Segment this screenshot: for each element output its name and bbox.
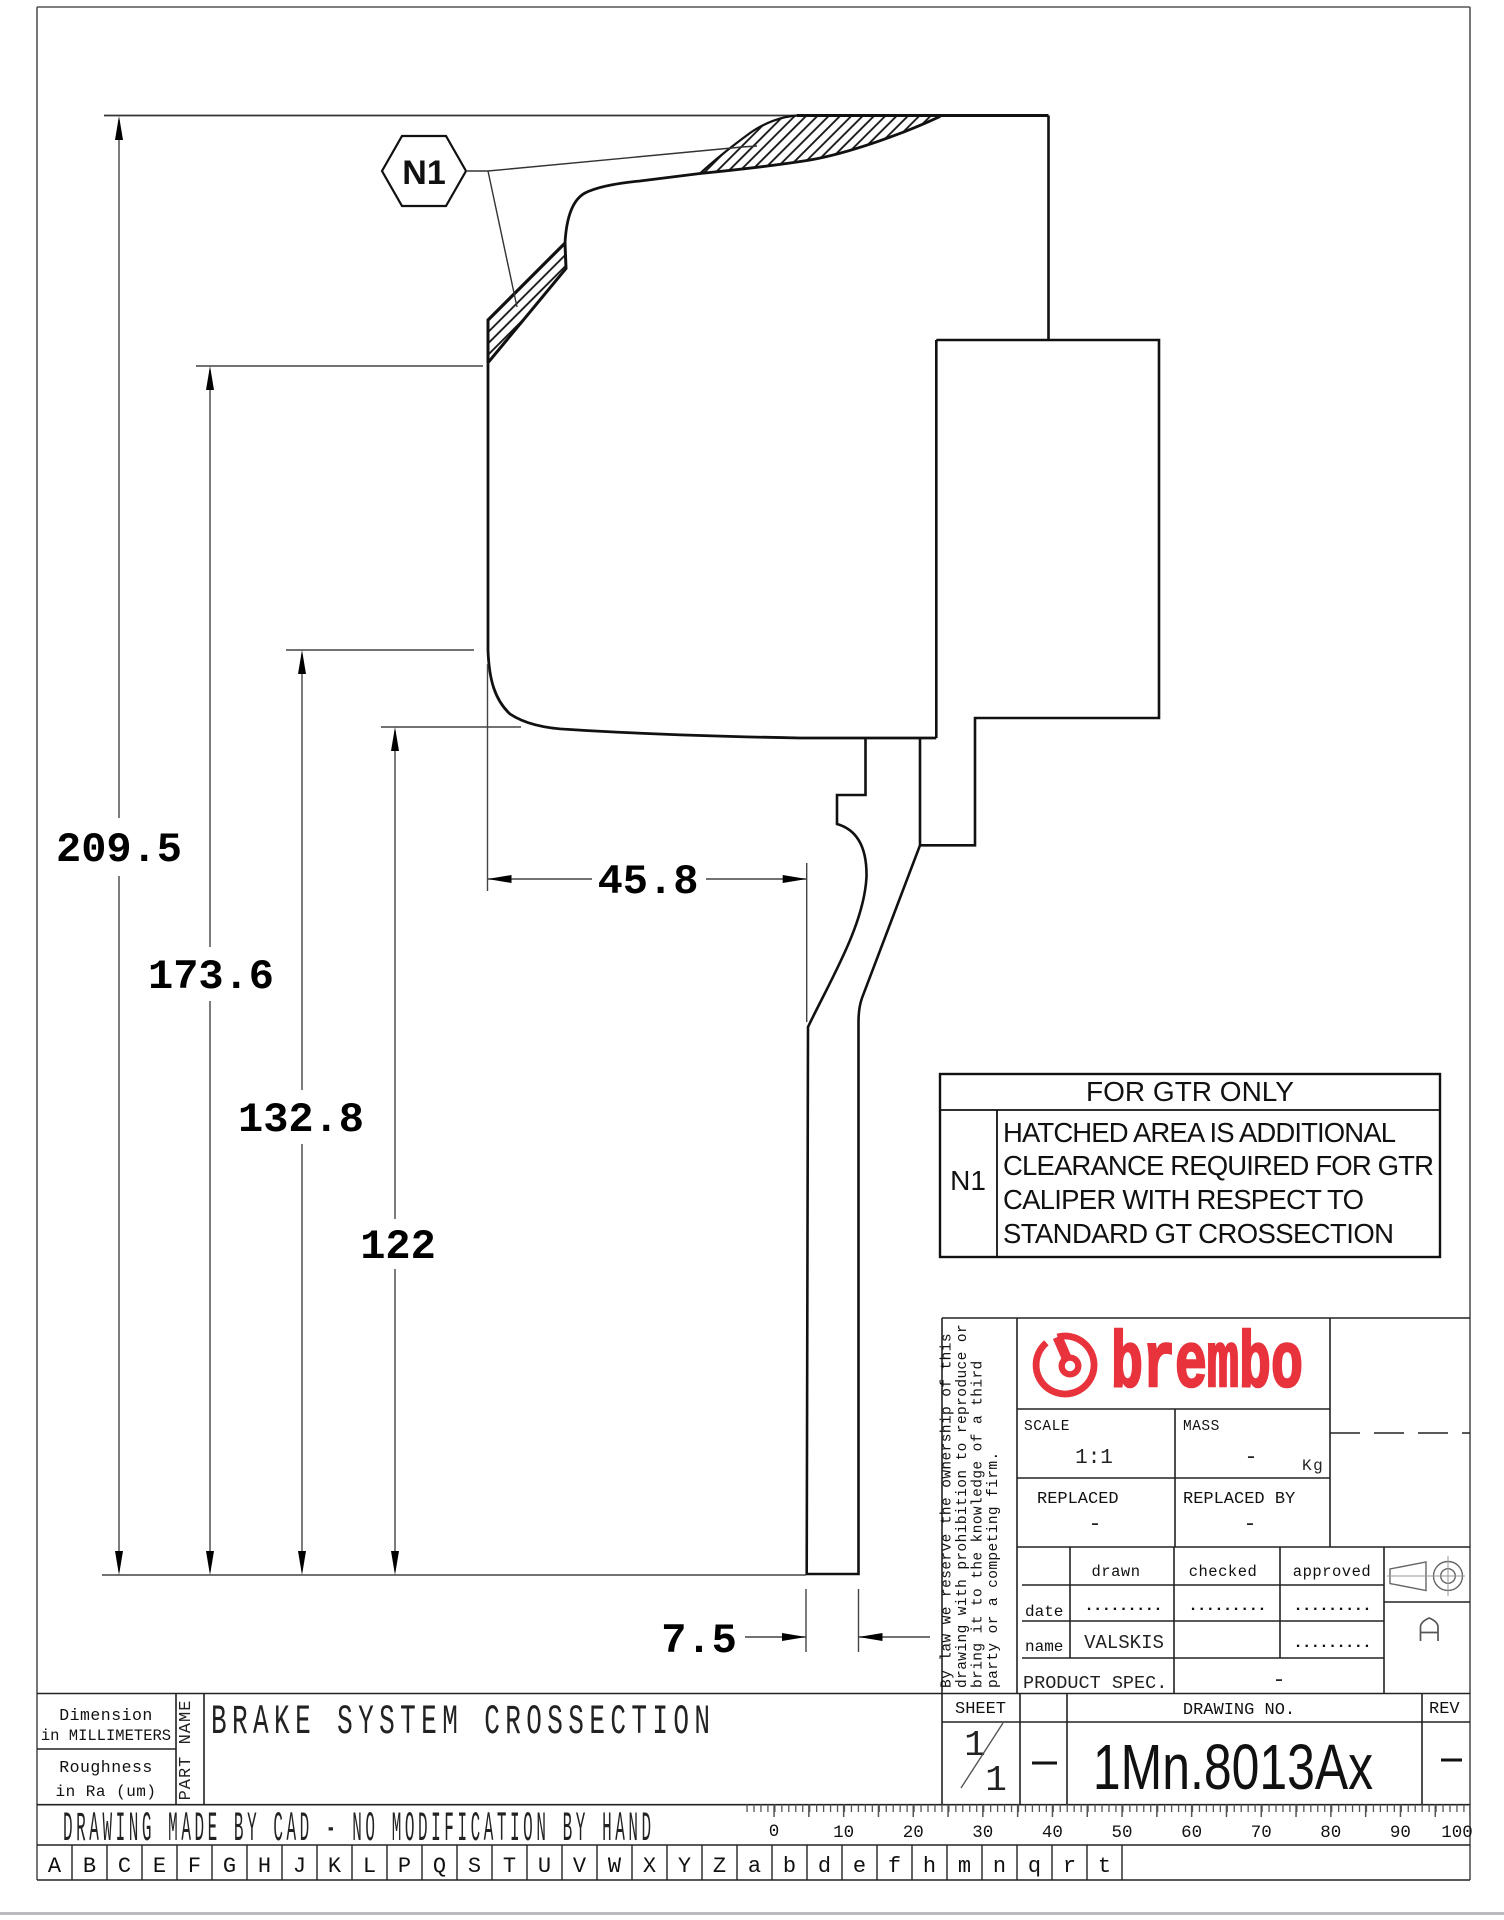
svg-text:80: 80 [1320, 1823, 1341, 1843]
svg-text:209.5: 209.5 [56, 826, 182, 874]
svg-text:J: J [293, 1854, 306, 1879]
svg-text:-: - [1088, 1512, 1101, 1537]
svg-text:.........: ......... [1293, 1634, 1370, 1652]
svg-text:in MILLIMETERS: in MILLIMETERS [41, 1727, 171, 1745]
svg-text:173.6: 173.6 [148, 953, 274, 1001]
svg-text:SHEET: SHEET [955, 1700, 1006, 1719]
svg-text:60: 60 [1181, 1823, 1202, 1843]
svg-text:STANDARD GT CROSSECTION: STANDARD GT CROSSECTION [1003, 1218, 1394, 1249]
svg-text:By law we reserve the ownershi: By law we reserve the ownership of this [940, 1333, 956, 1688]
svg-text:.........: ......... [1188, 1597, 1265, 1615]
svg-text:REPLACED BY: REPLACED BY [1183, 1490, 1295, 1509]
svg-text:t: t [1098, 1854, 1111, 1879]
svg-text:m: m [958, 1854, 971, 1879]
svg-text:1: 1 [985, 1760, 1007, 1801]
svg-text:CLEARANCE REQUIRED FOR GTR: CLEARANCE REQUIRED FOR GTR [1003, 1150, 1434, 1181]
svg-text:L: L [363, 1854, 376, 1879]
svg-text:Y: Y [678, 1854, 691, 1879]
svg-text:100: 100 [1441, 1823, 1473, 1843]
svg-text:W: W [608, 1854, 622, 1879]
svg-text:B: B [83, 1854, 96, 1879]
svg-text:.........: ......... [1084, 1597, 1161, 1615]
svg-text:10: 10 [833, 1823, 854, 1843]
svg-text:REPLACED: REPLACED [1037, 1490, 1119, 1509]
svg-text:BRAKE SYSTEM CROSSECTION: BRAKE SYSTEM CROSSECTION [211, 1699, 715, 1746]
svg-text:r: r [1063, 1854, 1076, 1879]
svg-text:in Ra (um): in Ra (um) [55, 1783, 156, 1801]
svg-text:C: C [118, 1854, 131, 1879]
svg-text:h: h [923, 1854, 936, 1879]
svg-text:50: 50 [1111, 1823, 1132, 1843]
svg-text:132.8: 132.8 [238, 1096, 364, 1144]
svg-text:HATCHED AREA IS ADDITIONAL: HATCHED AREA IS ADDITIONAL [1003, 1117, 1396, 1148]
svg-text:30: 30 [972, 1823, 993, 1843]
svg-text:SCALE: SCALE [1024, 1419, 1070, 1435]
svg-text:FOR GTR ONLY: FOR GTR ONLY [1086, 1076, 1294, 1107]
svg-text:DRAWING NO.: DRAWING NO. [1183, 1701, 1295, 1720]
svg-text:G: G [223, 1854, 236, 1879]
svg-text:a: a [748, 1854, 761, 1879]
svg-text:q: q [1028, 1854, 1041, 1879]
svg-text:checked: checked [1189, 1563, 1258, 1581]
svg-text:45.8: 45.8 [598, 858, 699, 906]
svg-text:f: f [888, 1854, 901, 1879]
svg-text:N1: N1 [402, 154, 445, 192]
svg-text:-: - [1243, 1512, 1256, 1537]
svg-text:T: T [503, 1854, 516, 1879]
svg-text:-: - [1272, 1668, 1285, 1693]
svg-text:-: - [1244, 1445, 1257, 1470]
svg-text:1Mn.8013Ax: 1Mn.8013Ax [1093, 1732, 1373, 1803]
svg-text:90: 90 [1390, 1823, 1411, 1843]
svg-text:70: 70 [1251, 1823, 1272, 1843]
svg-text:F: F [188, 1854, 201, 1879]
svg-text:VALSKIS: VALSKIS [1084, 1632, 1164, 1654]
svg-text:N1: N1 [950, 1165, 986, 1196]
svg-text:name: name [1025, 1638, 1063, 1656]
svg-text:Q: Q [433, 1854, 446, 1879]
svg-text:0: 0 [769, 1822, 780, 1842]
svg-text:1: 1 [964, 1725, 986, 1766]
svg-text:U: U [538, 1854, 551, 1879]
svg-text:DRAWING MADE BY CAD - NO MODIF: DRAWING MADE BY CAD - NO MODIFICATION BY… [63, 1806, 655, 1854]
svg-text:drawn: drawn [1091, 1563, 1140, 1581]
svg-text:H: H [258, 1854, 271, 1879]
svg-text:brembo: brembo [1111, 1322, 1303, 1411]
svg-text:approved: approved [1293, 1563, 1371, 1581]
svg-text:PART NAME: PART NAME [177, 1700, 196, 1801]
svg-text:E: E [153, 1854, 166, 1879]
svg-text:.........: ......... [1293, 1597, 1370, 1615]
svg-text:party or a competing firm.: party or a competing firm. [986, 1451, 1002, 1688]
svg-text:MASS: MASS [1183, 1419, 1220, 1435]
svg-text:P: P [398, 1854, 411, 1879]
svg-text:REV: REV [1429, 1700, 1460, 1719]
svg-text:V: V [573, 1854, 587, 1879]
svg-text:1:1: 1:1 [1075, 1447, 1113, 1470]
svg-text:K: K [328, 1854, 342, 1879]
svg-text:7.5: 7.5 [661, 1617, 737, 1665]
svg-text:date: date [1025, 1603, 1063, 1621]
svg-text:40: 40 [1042, 1823, 1063, 1843]
svg-text:S: S [468, 1854, 481, 1879]
svg-text:bring it to the knowledge of a: bring it to the knowledge of a third [971, 1360, 987, 1688]
svg-text:Kg: Kg [1302, 1457, 1324, 1475]
svg-text:X: X [643, 1854, 656, 1879]
svg-text:e: e [853, 1854, 866, 1879]
svg-text:n: n [993, 1854, 1006, 1879]
svg-text:drawing with prohibition to re: drawing with prohibition to reproduce or [955, 1324, 971, 1688]
svg-text:Dimension: Dimension [59, 1706, 153, 1725]
svg-text:d: d [818, 1854, 831, 1879]
svg-text:122: 122 [360, 1223, 436, 1271]
svg-text:20: 20 [903, 1823, 924, 1843]
svg-text:Roughness: Roughness [59, 1758, 153, 1777]
svg-text:CALIPER WITH RESPECT TO: CALIPER WITH RESPECT TO [1003, 1184, 1364, 1215]
svg-text:b: b [783, 1854, 796, 1879]
svg-text:Z: Z [713, 1854, 726, 1879]
svg-text:PRODUCT SPEC.: PRODUCT SPEC. [1023, 1673, 1167, 1694]
svg-text:A: A [48, 1854, 62, 1879]
